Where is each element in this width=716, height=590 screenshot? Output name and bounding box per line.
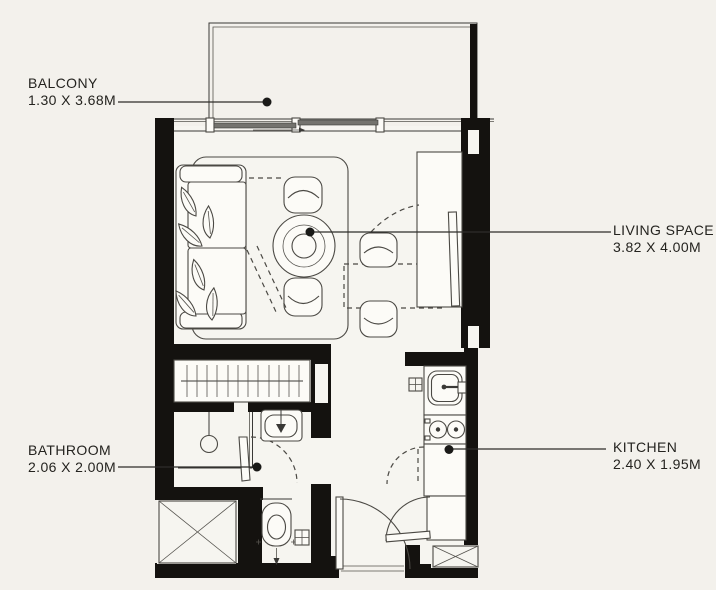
kitchen-label: KITCHEN 2.40 X 1.95M: [613, 439, 701, 473]
dining-chair-top: [360, 233, 397, 267]
wardrobe: [174, 360, 310, 402]
hob: [424, 415, 466, 444]
sofa: [170, 165, 246, 329]
room-name: KITCHEN: [613, 439, 701, 456]
bathroom-leader-dot: [253, 463, 262, 472]
room-name: LIVING SPACE: [613, 222, 714, 239]
washbasin: [261, 410, 302, 441]
room-dimensions: 1.30 X 3.68M: [28, 92, 116, 109]
room-dimensions: 2.40 X 1.95M: [613, 456, 701, 473]
coffee-table: [273, 215, 335, 277]
sliding-panel: [214, 123, 296, 128]
kitchen-leader-dot: [445, 445, 454, 454]
mullion: [206, 118, 214, 132]
dining-chair-bottom: [360, 301, 397, 337]
kitchen-lower-cabinet: [427, 496, 466, 540]
floor-plan-page: BALCONY 1.30 X 3.68M LIVING SPACE 3.82 X…: [0, 0, 716, 590]
sliding-panel: [298, 120, 378, 125]
lounge-chair-top: [284, 177, 322, 213]
balcony-label: BALCONY 1.30 X 3.68M: [28, 75, 116, 109]
room-dimensions: 2.06 X 2.00M: [28, 459, 116, 476]
floor-drain: [295, 530, 309, 545]
lounge-chair-bottom: [284, 278, 322, 316]
room-dimensions: 3.82 X 4.00M: [613, 239, 714, 256]
kitchen-sink: [428, 371, 466, 405]
room-name: BALCONY: [28, 75, 116, 92]
balcony-leader-dot: [263, 98, 272, 107]
balcony-outline: [209, 23, 477, 119]
room-name: BATHROOM: [28, 442, 116, 459]
bathroom-label: BATHROOM 2.06 X 2.00M: [28, 442, 116, 476]
living-leader-dot: [306, 228, 315, 237]
living-space-label: LIVING SPACE 3.82 X 4.00M: [613, 222, 714, 256]
